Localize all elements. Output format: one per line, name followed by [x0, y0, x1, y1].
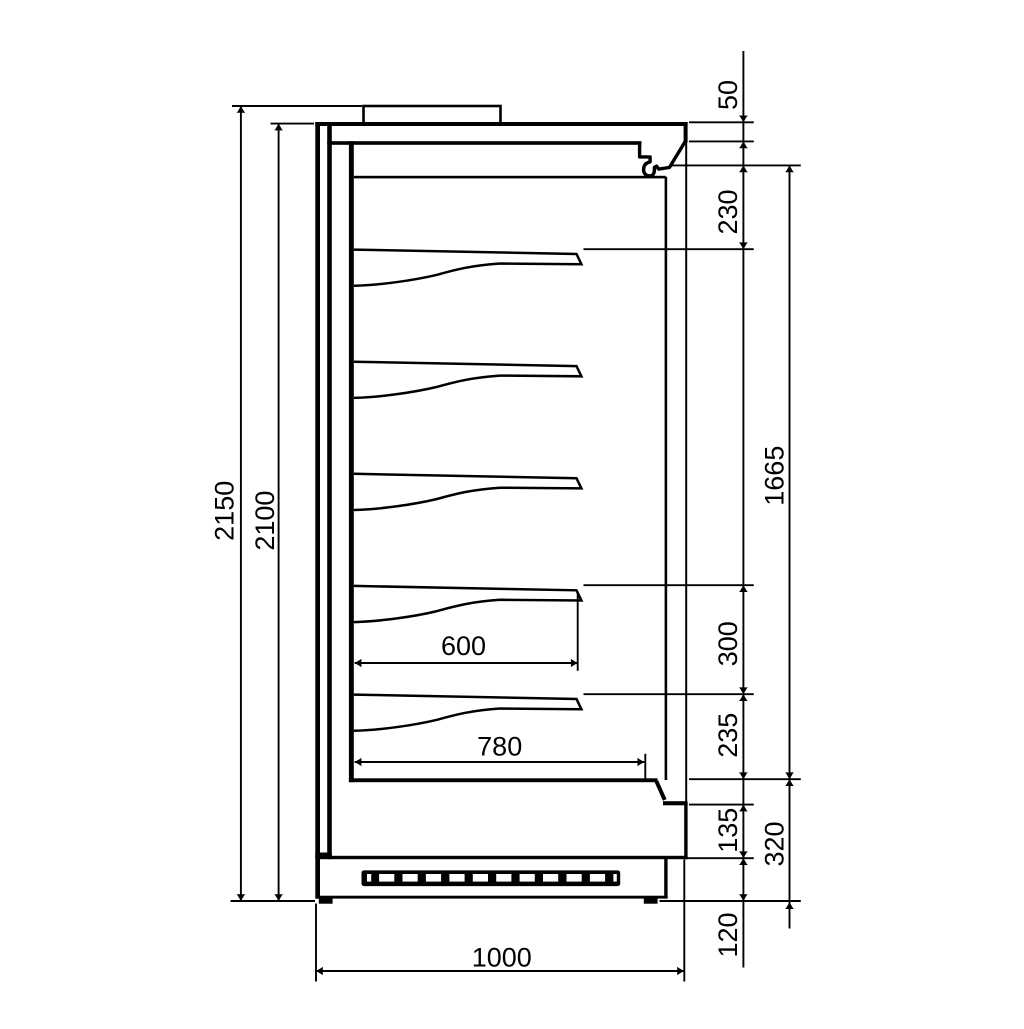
svg-text:1000: 1000 [472, 943, 532, 973]
svg-text:600: 600 [441, 631, 486, 661]
svg-text:300: 300 [713, 621, 743, 666]
svg-text:2100: 2100 [250, 491, 280, 551]
svg-text:235: 235 [713, 713, 743, 758]
svg-text:50: 50 [713, 80, 743, 110]
svg-text:120: 120 [713, 912, 743, 957]
svg-text:320: 320 [760, 821, 790, 866]
svg-text:230: 230 [713, 189, 743, 234]
svg-text:1665: 1665 [760, 446, 790, 506]
svg-text:2150: 2150 [209, 481, 239, 541]
svg-text:135: 135 [713, 808, 743, 853]
svg-text:780: 780 [477, 732, 522, 762]
